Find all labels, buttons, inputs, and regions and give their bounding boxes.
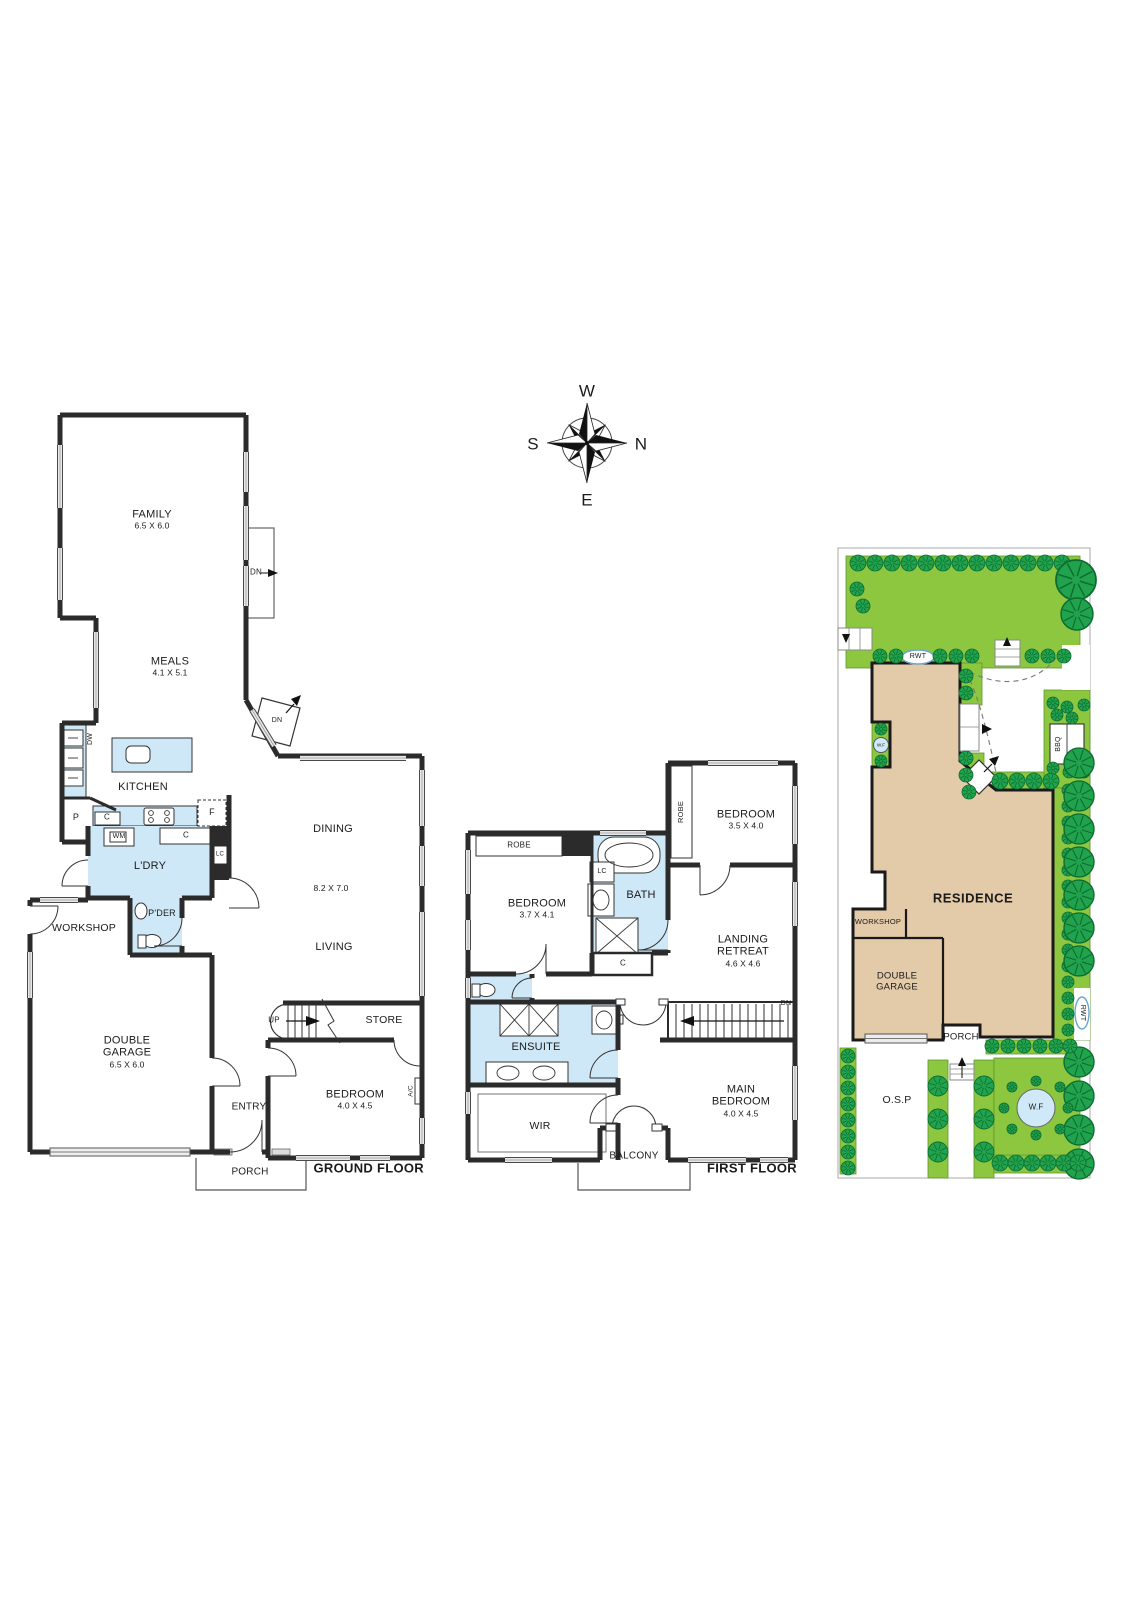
stairs-down-label: DN <box>781 1000 792 1008</box>
fridge-label: F <box>209 807 215 817</box>
bbq-label: BBQ <box>1055 736 1063 751</box>
room-label-wir: WIR <box>529 1121 550 1133</box>
side-stoop <box>960 704 979 751</box>
room-dims: 6.5 X 6.0 <box>132 522 172 532</box>
room-label-store: STORE <box>366 1015 403 1027</box>
room-label-entry: ENTRY <box>232 1101 267 1112</box>
linen-label-ground: LC <box>216 852 224 859</box>
room-label-bedroom3: BEDROOM 3.5 X 4.0 <box>717 809 775 832</box>
room-label-bedroom-ground: BEDROOM 4.0 X 4.5 <box>326 1089 384 1112</box>
room-dims: 3.7 X 4.1 <box>508 911 566 921</box>
robe-label-bed2: ROBE <box>507 842 530 851</box>
balcony-outline <box>578 1163 690 1190</box>
dishwasher-label: DW <box>87 733 95 745</box>
robe-label-bed3: ROBE <box>677 801 685 823</box>
osp-label: O.S.P <box>882 1095 911 1107</box>
room-label-laundry: L'DRY <box>134 860 166 872</box>
site-plan <box>838 548 1096 1179</box>
room-label-family: FAMILY 6.5 X 6.0 <box>132 509 172 532</box>
room-label-ensuite: ENSUITE <box>511 1041 560 1053</box>
room-label-dining: DINING <box>313 823 353 835</box>
site-garage-label: DOUBLE GARAGE <box>867 971 927 992</box>
room-label-bath: BATH <box>626 889 655 901</box>
ground-floor-title: GROUND FLOOR <box>314 1162 424 1177</box>
room-label-powder: P'DER <box>148 908 176 918</box>
floorplan-sheet: W N E S FAMILY 6.5 X 6.0 MEALS 4.1 X 5.1… <box>0 0 1132 1600</box>
site-workshop-label: WORKSHOP <box>855 918 901 926</box>
room-label-garage: DOUBLE GARAGE 6.5 X 6.0 <box>90 1034 164 1069</box>
room-dims: 4.6 X 4.6 <box>703 959 783 969</box>
room-label-balcony: BALCONY <box>609 1150 658 1161</box>
site-porch-label: PORCH <box>943 1033 978 1044</box>
room-dims: 6.5 X 6.0 <box>90 1060 164 1070</box>
room-name: FAMILY <box>132 509 172 521</box>
room-dims: 4.0 X 4.5 <box>326 1102 384 1112</box>
room-name: BEDROOM <box>717 809 775 821</box>
room-label-kitchen: KITCHEN <box>118 781 168 793</box>
rwt-side-label: RWT <box>1078 1005 1086 1021</box>
compass-rose <box>547 403 627 483</box>
aircon-label: A/C <box>407 1085 414 1096</box>
living-dims: 8.2 X 7.0 <box>314 884 349 894</box>
room-name: DOUBLE GARAGE <box>90 1034 164 1059</box>
wf-small-label: W.F <box>877 742 885 747</box>
cupboard-label-first: C <box>620 960 626 969</box>
room-label-living: LIVING <box>315 941 352 953</box>
room-name: MEALS <box>151 656 189 668</box>
down-label-meals: DN <box>272 717 283 725</box>
room-label-porch: PORCH <box>231 1166 268 1177</box>
ground-walls <box>30 415 422 1158</box>
room-dims: 3.5 X 4.0 <box>717 822 775 832</box>
room-name: LANDING RETREAT <box>703 933 783 958</box>
room-label-workshop: WORKSHOP <box>52 923 116 935</box>
residence-label: RESIDENCE <box>933 892 1013 907</box>
compass-east: E <box>581 490 593 509</box>
pantry-label: P <box>73 812 79 822</box>
room-dims: 4.0 X 4.5 <box>701 1109 781 1119</box>
room-name: BEDROOM <box>326 1089 384 1101</box>
room-label-bedroom2: BEDROOM 3.7 X 4.1 <box>508 898 566 921</box>
linen-label-first: LC <box>597 868 606 876</box>
floorplan-canvas <box>0 0 1132 1600</box>
compass-west: W <box>579 381 595 400</box>
rwt-top-label: RWT <box>910 653 926 661</box>
room-label-main-bedroom: MAIN BEDROOM 4.0 X 4.5 <box>701 1083 781 1118</box>
compass-south: S <box>527 434 539 453</box>
room-label-meals: MEALS 4.1 X 5.1 <box>151 656 189 679</box>
room-dims: 4.1 X 5.1 <box>151 669 189 679</box>
first-floor-title: FIRST FLOOR <box>707 1162 797 1177</box>
compass-north: N <box>635 434 647 453</box>
cupboard1-label: C <box>104 814 110 823</box>
wf-large-label: W.F <box>1029 1104 1044 1113</box>
ground-floor-plan <box>30 415 424 1190</box>
washing-machine-label: WM <box>113 833 126 841</box>
room-name: MAIN BEDROOM <box>701 1083 781 1108</box>
room-label-landing: LANDING RETREAT 4.6 X 4.6 <box>703 933 783 968</box>
stairs-up-label: UP <box>268 1017 280 1026</box>
cupboard2-label: C <box>183 832 189 841</box>
down-label-family: DN <box>250 569 262 578</box>
room-name: BEDROOM <box>508 898 566 910</box>
